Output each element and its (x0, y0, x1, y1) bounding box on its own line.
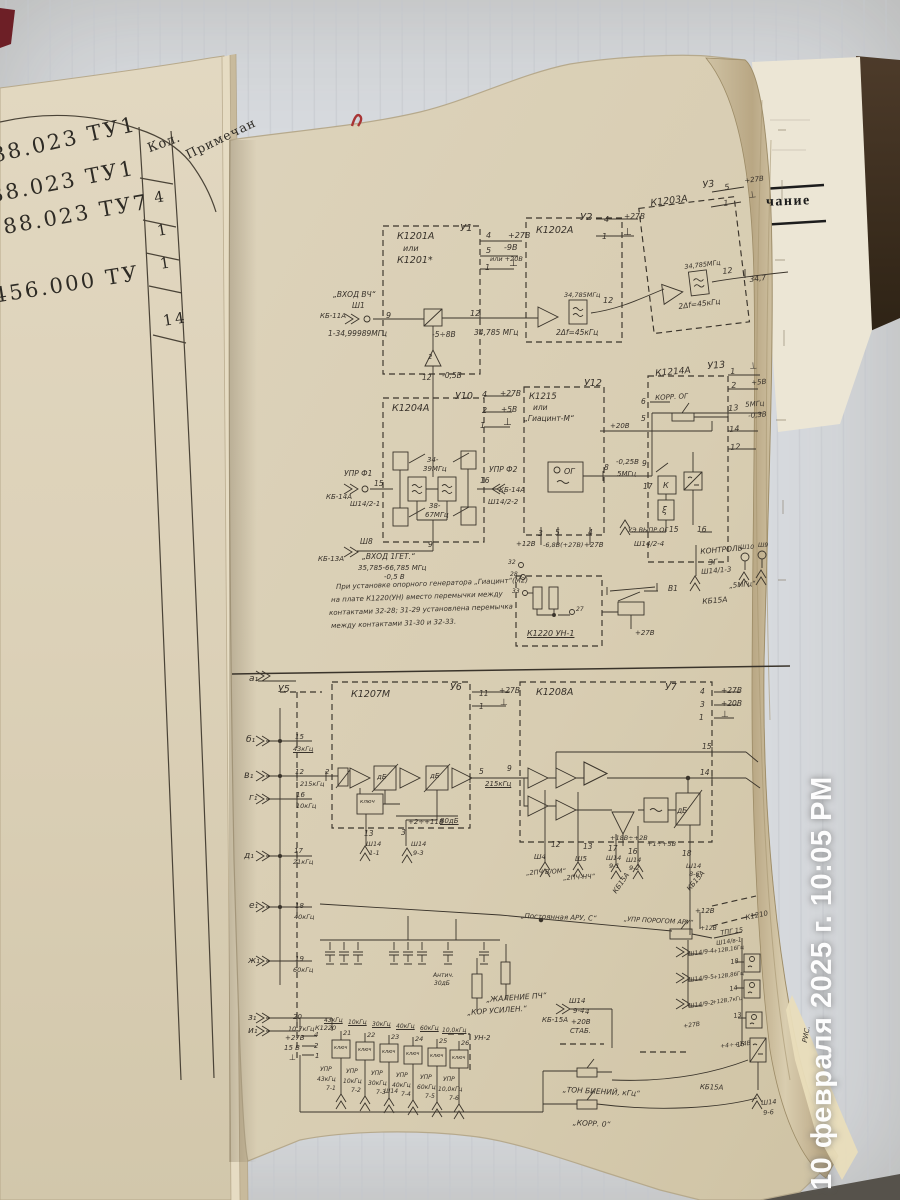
scene-art (0, 0, 900, 1200)
left-page-stack (0, 54, 248, 1200)
photo-of-schematic-book: 88.023 ТУ1 88.023 ТУ1 088.023 ТУ7 456.00… (0, 0, 900, 1200)
timestamp-overlay: 10 февраля 2025 г. 10:05 PM (806, 710, 846, 1190)
